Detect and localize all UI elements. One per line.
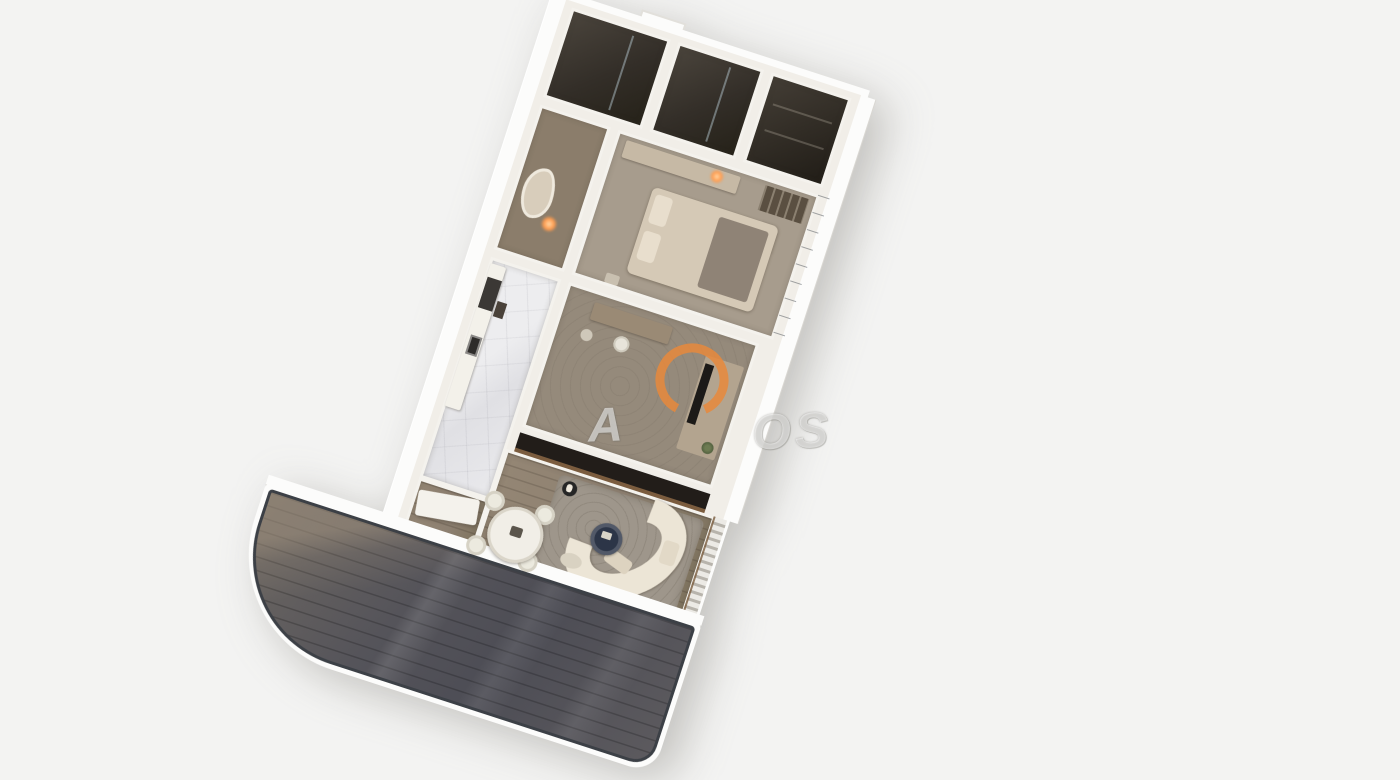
tv-console <box>676 355 744 461</box>
throw-blanket <box>697 216 769 302</box>
utility-shelf <box>764 129 824 150</box>
bedside-table <box>604 272 620 286</box>
apartment-3d-model <box>201 0 908 780</box>
room-utility <box>743 72 852 187</box>
utility-shelf <box>772 104 832 125</box>
wardrobe-shelving <box>758 185 810 224</box>
stool <box>579 327 594 342</box>
dining-chair <box>464 533 489 558</box>
desk-chair <box>611 334 631 354</box>
floating-desk <box>590 302 674 344</box>
pillow <box>647 194 673 228</box>
double-bed <box>626 187 779 313</box>
tv-screen <box>686 363 714 425</box>
render-canvas: A OS <box>0 0 1400 780</box>
floor-lamp-glow <box>539 214 559 234</box>
room-bathroom-2 <box>649 42 764 159</box>
decorative-mirror <box>515 163 562 222</box>
pillow <box>636 230 662 264</box>
plant <box>700 440 715 455</box>
